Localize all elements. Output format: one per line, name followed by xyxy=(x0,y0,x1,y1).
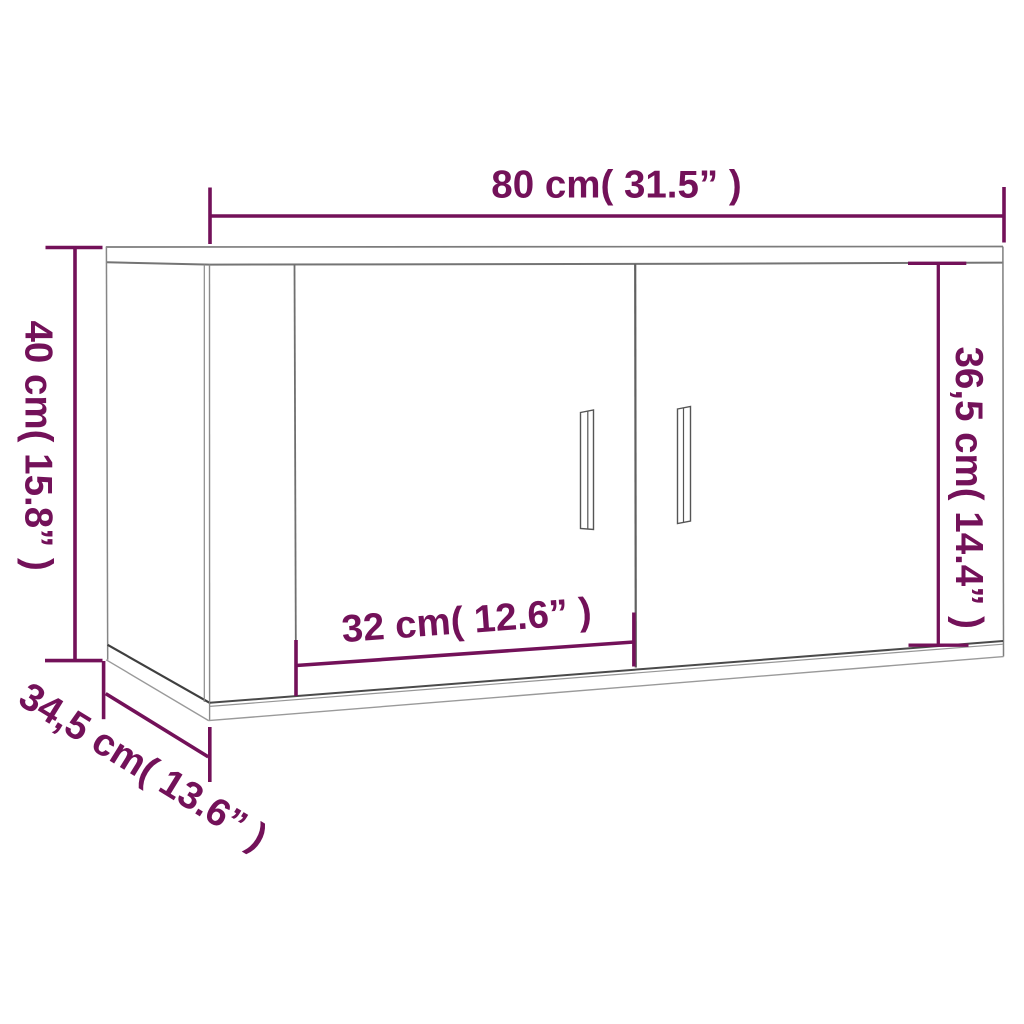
svg-text:32 cm( 12.6” ): 32 cm( 12.6” ) xyxy=(340,590,593,651)
svg-text:36,5 cm( 14.4” ): 36,5 cm( 14.4” ) xyxy=(947,347,990,630)
svg-text:40 cm( 15.8” ): 40 cm( 15.8” ) xyxy=(17,321,60,571)
svg-text:34,5 cm( 13.6” ): 34,5 cm( 13.6” ) xyxy=(11,674,274,859)
svg-text:80 cm( 31.5” ): 80 cm( 31.5” ) xyxy=(491,164,741,207)
